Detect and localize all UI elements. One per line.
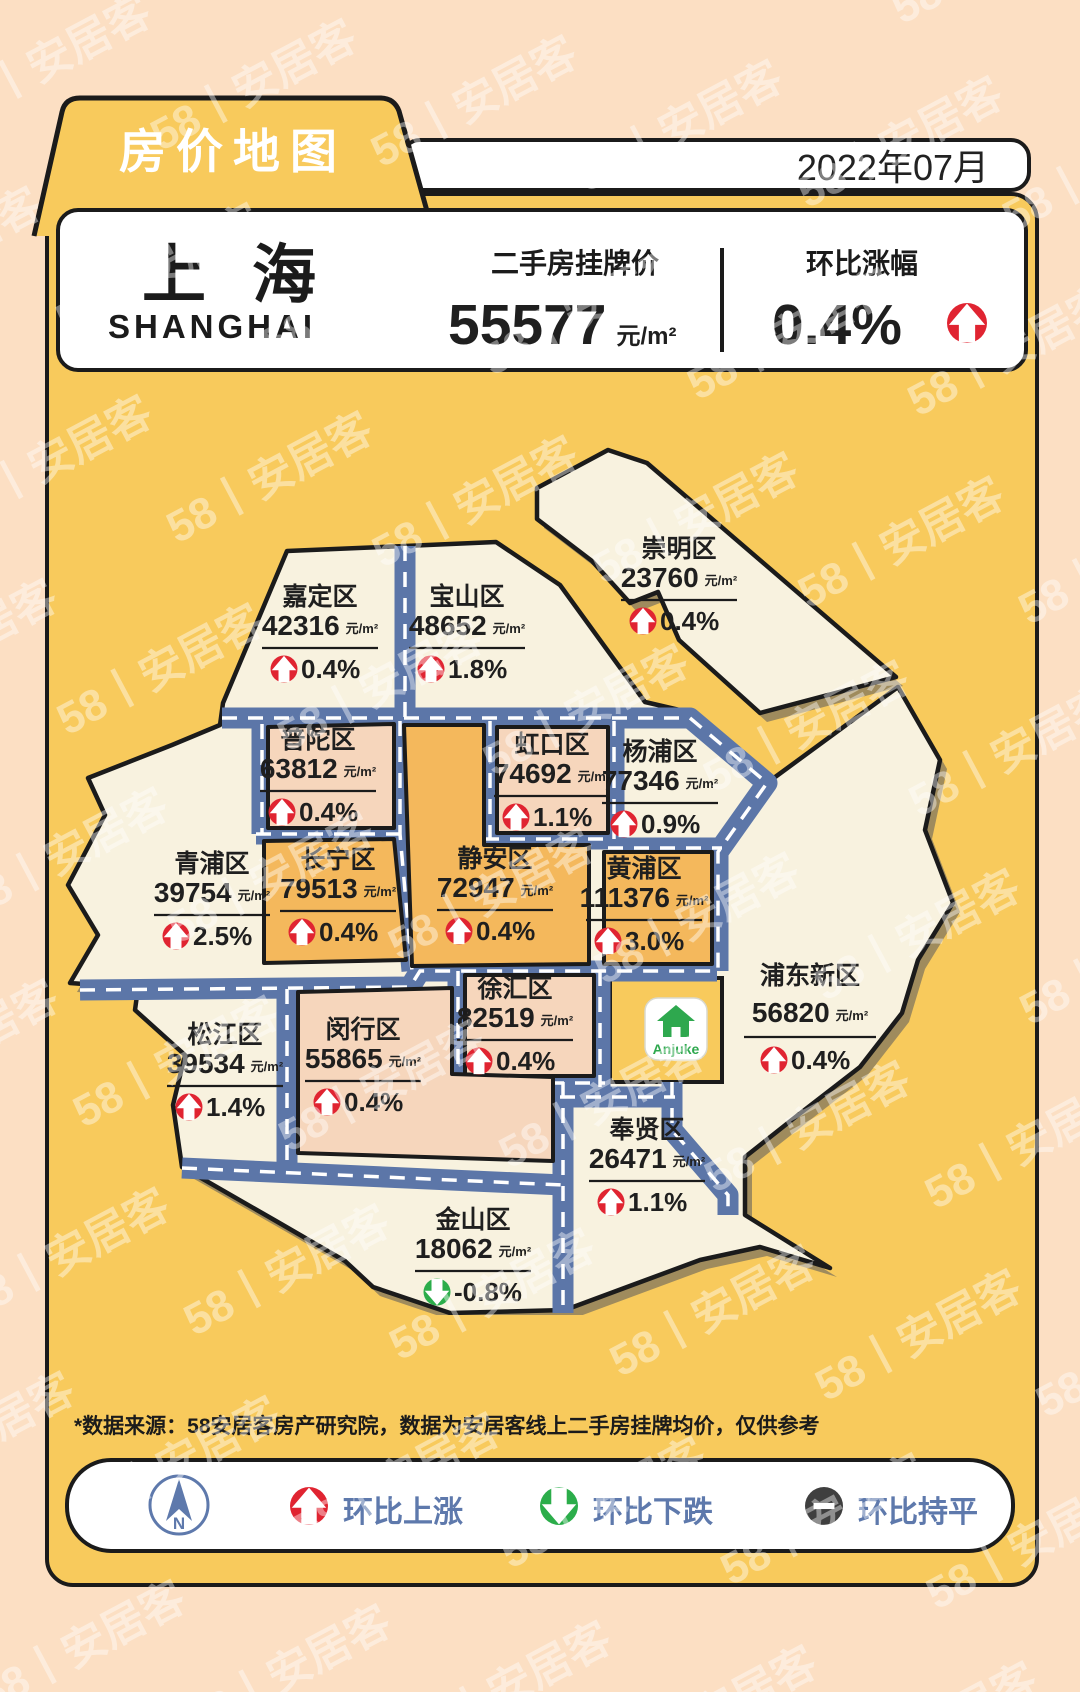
flat-arrow-icon xyxy=(805,1487,843,1525)
up-arrow-icon xyxy=(466,1048,493,1075)
compass-north-label: N xyxy=(173,1514,185,1533)
up-arrow-icon xyxy=(611,811,638,838)
up-arrow-icon xyxy=(176,1094,203,1121)
district-change: 1.8% xyxy=(448,654,507,684)
district-change: 1.1% xyxy=(533,802,592,832)
minus-icon xyxy=(804,1486,844,1531)
summary-card: 上海 SHANGHAI 二手房挂牌价 55577 元/m² 环比涨幅 0.4% xyxy=(56,208,1028,372)
page-title: 房价地图 xyxy=(119,125,347,178)
up-arrow-icon xyxy=(290,1487,328,1525)
up-arrow-icon xyxy=(289,919,316,946)
district-change: 1.4% xyxy=(206,1092,265,1122)
district-change: -0.8% xyxy=(454,1277,522,1307)
district-change: 0.4% xyxy=(791,1045,850,1075)
up-arrow-icon xyxy=(418,656,445,683)
up-arrow-icon xyxy=(761,1047,788,1074)
legend-item-flat: 环比持平 xyxy=(804,1486,978,1531)
district-change: 1.1% xyxy=(628,1187,687,1217)
district-change: 0.4% xyxy=(476,916,535,946)
data-source-note: *数据来源：58安居客房产研究院，数据为安居客线上二手房挂牌均价，仅供参考 xyxy=(74,1410,820,1440)
mom-change-value: 0.4% xyxy=(772,292,988,358)
listing-price-value: 55577 元/m² xyxy=(448,292,677,358)
up-arrow-icon xyxy=(163,923,190,950)
legend-item-down: 环比下跌 xyxy=(539,1486,713,1531)
legend-item-up: 环比上涨 xyxy=(289,1486,463,1531)
report-date: 2022年07月 xyxy=(797,139,989,191)
legend-bar: N 环比上涨 环比下跌 环比持平 xyxy=(65,1458,1015,1553)
down-arrow-icon xyxy=(540,1487,578,1525)
district-name: 闵行区 xyxy=(325,1015,400,1044)
up-arrow-icon xyxy=(314,1089,341,1116)
district-name: 青浦区 xyxy=(174,849,249,878)
district-name: 宝山区 xyxy=(429,582,504,611)
up-arrow-icon xyxy=(595,928,622,955)
price-unit: 元/m² xyxy=(617,316,677,351)
district-name: 金山区 xyxy=(434,1205,510,1234)
down-arrow-icon xyxy=(424,1279,451,1306)
district-change: 0.4% xyxy=(660,606,719,636)
district-name: 虹口区 xyxy=(514,731,589,759)
district-name: 松江区 xyxy=(187,1021,262,1049)
trend-up-icon xyxy=(946,302,988,349)
compass-icon: N xyxy=(147,1473,211,1537)
city-name-en: SHANGHAI xyxy=(108,308,316,346)
district-change: 0.4% xyxy=(344,1087,403,1117)
up-arrow-icon xyxy=(269,799,296,826)
district-name: 崇明区 xyxy=(641,535,716,563)
price-map: 崇明区23760元/m²0.4%嘉定区42316元/m²0.4%宝山区48652… xyxy=(60,415,980,1315)
listing-price-label: 二手房挂牌价 xyxy=(450,242,700,282)
district-name: 长宁区 xyxy=(300,845,375,874)
district-name: 奉贤区 xyxy=(608,1116,684,1144)
city-name: 上海 xyxy=(142,224,362,316)
anjuke-logo: Anjuke xyxy=(645,998,707,1060)
anjuke-logo-text: Anjuke xyxy=(653,1041,700,1057)
up-arrow-icon xyxy=(503,804,530,831)
district-name: 嘉定区 xyxy=(282,582,357,611)
date-bar: 2022年07月 xyxy=(400,138,1031,192)
up-arrow-icon xyxy=(947,303,987,343)
district-change: 0.4% xyxy=(299,797,358,827)
district-change: 2.5% xyxy=(193,921,252,951)
district-change: 0.4% xyxy=(301,654,360,684)
up-arrow-icon xyxy=(271,656,298,683)
district-change: 0.9% xyxy=(641,809,700,839)
mom-change-label: 环比涨幅 xyxy=(762,242,962,282)
district-change: 0.4% xyxy=(319,917,378,947)
up-arrow-icon xyxy=(446,918,473,945)
divider xyxy=(720,248,724,352)
district-change: 0.4% xyxy=(496,1046,555,1076)
district-name: 黄浦区 xyxy=(606,854,681,883)
district-name: 静安区 xyxy=(457,844,532,873)
down-arrow-icon xyxy=(539,1486,579,1531)
district-name: 普陀区 xyxy=(280,725,355,754)
up-arrow-icon xyxy=(598,1189,625,1216)
district-name: 浦东新区 xyxy=(760,961,860,990)
up-arrow-icon xyxy=(630,608,657,635)
district-change: 3.0% xyxy=(625,926,684,956)
up-arrow-icon xyxy=(289,1486,329,1531)
district-name: 杨浦区 xyxy=(622,737,697,766)
district-name: 徐汇区 xyxy=(476,974,552,1003)
